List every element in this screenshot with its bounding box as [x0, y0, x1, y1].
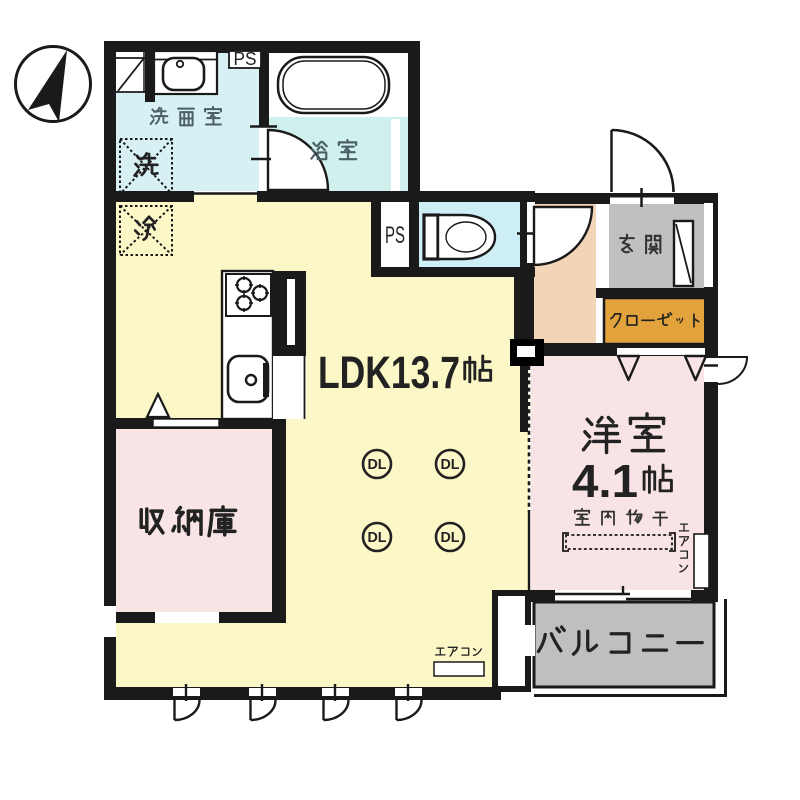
- svg-text:PS: PS: [385, 222, 405, 249]
- svg-text:LDK13.7: LDK13.7: [318, 347, 460, 398]
- svg-text:DL: DL: [368, 529, 387, 546]
- svg-text:PS: PS: [234, 49, 257, 69]
- svg-text:DL: DL: [441, 529, 460, 546]
- svg-text:DL: DL: [441, 456, 460, 473]
- svg-text:4.1: 4.1: [572, 455, 638, 507]
- svg-text:DL: DL: [368, 456, 387, 473]
